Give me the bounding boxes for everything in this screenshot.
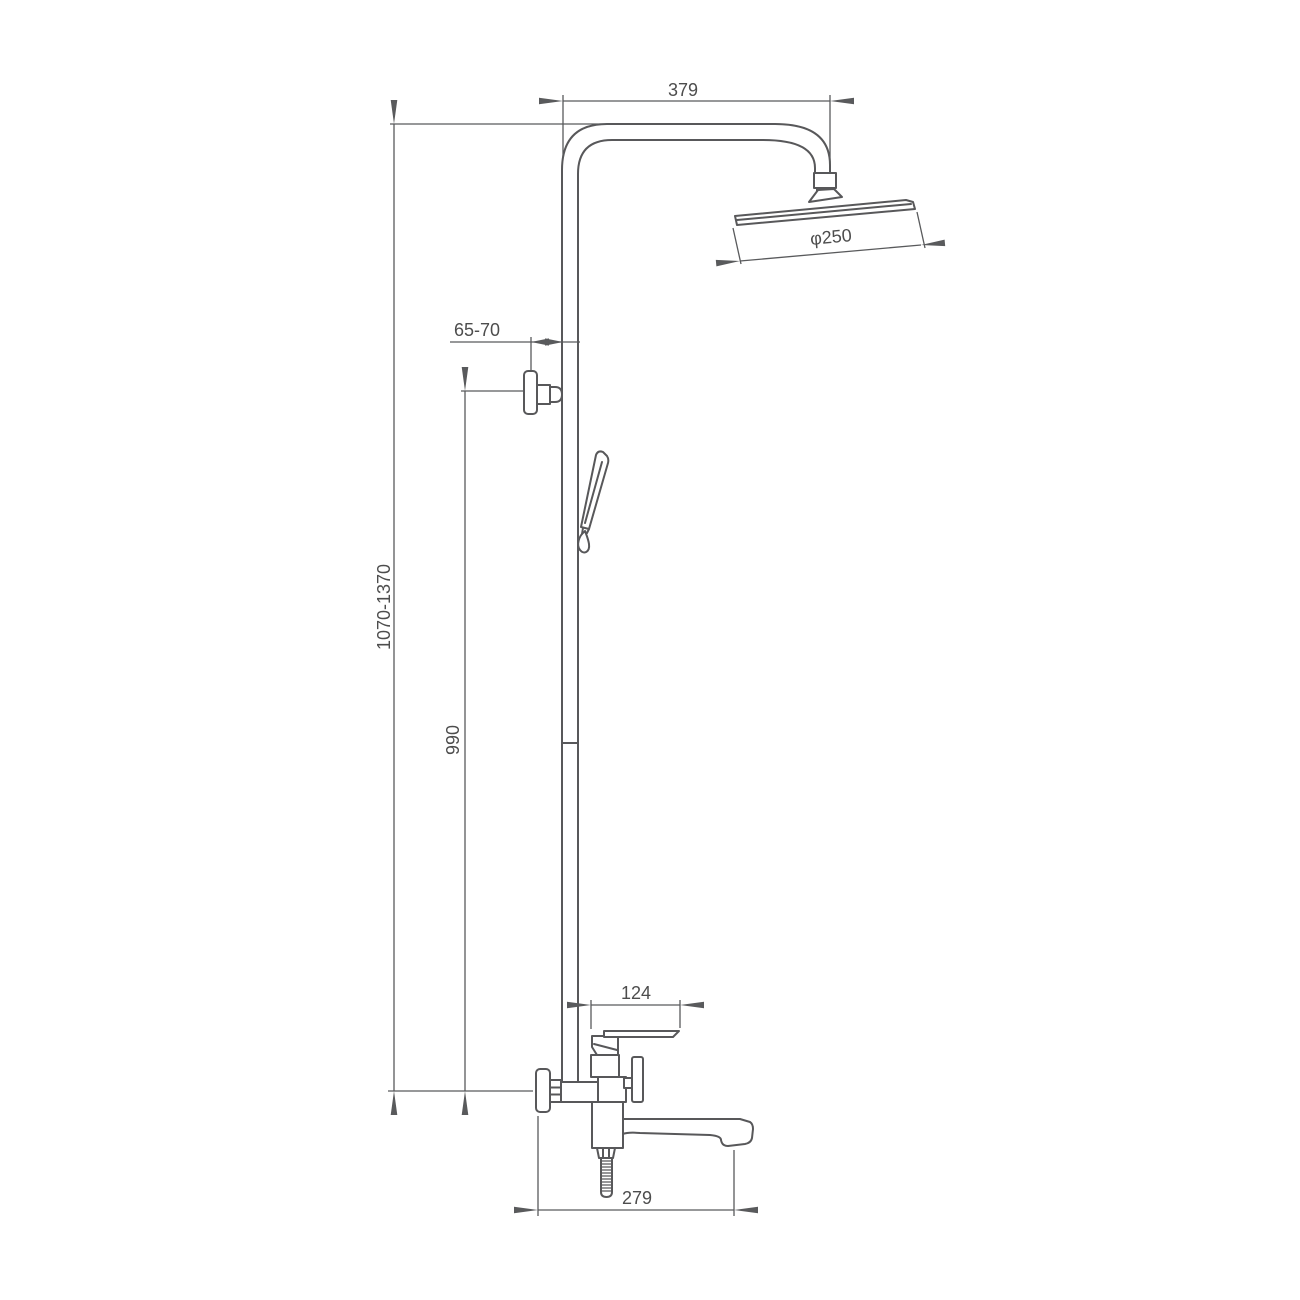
- technical-drawing-canvas: 379 φ250 65-70 1070-1370 990 124: [0, 0, 1300, 1300]
- rain-shower-head: [735, 200, 915, 225]
- mixer-cartridge-body: [591, 1055, 619, 1077]
- dimension-handle-width: 124: [591, 983, 680, 1005]
- mixer-mid-body: [598, 1077, 626, 1102]
- dimension-annotations: 379 φ250 65-70 1070-1370 990 124: [374, 80, 925, 1216]
- dimension-head-diameter: φ250: [740, 225, 921, 261]
- dimension-wall-offset: 65-70: [450, 320, 580, 346]
- head-cone: [809, 189, 842, 202]
- dim-label-wall-offset: 65-70: [454, 320, 500, 340]
- mixer-valve: [591, 1031, 753, 1197]
- mixer-handle: [592, 1031, 679, 1055]
- dim-label-head-diameter: φ250: [809, 225, 852, 249]
- dimension-riser-height: 990: [443, 391, 465, 1091]
- wall-flange: [536, 1069, 550, 1112]
- dim-label-arm-reach: 379: [668, 80, 698, 100]
- shower-fixture: [524, 124, 915, 1197]
- head-connector: [809, 173, 842, 202]
- dimension-spout-reach: 279: [538, 1188, 734, 1210]
- dim-label-spout-reach: 279: [622, 1188, 652, 1208]
- dimension-overall-height: 1070-1370: [374, 124, 394, 1091]
- inlet-hex-nut: [550, 1080, 561, 1102]
- tub-spout: [623, 1119, 753, 1146]
- dim-label-overall-height: 1070-1370: [374, 564, 394, 650]
- hand-shower-hook: [578, 531, 589, 552]
- upper-wall-bracket: [524, 371, 562, 414]
- riser-pipe-and-shower-arm: [562, 124, 830, 1082]
- extension-lines: [388, 95, 925, 1216]
- dim-label-riser-height: 990: [443, 725, 463, 755]
- mixer-lower-body: [592, 1102, 623, 1148]
- hose-nut: [597, 1148, 615, 1158]
- mixer-handle-lever: [604, 1031, 679, 1037]
- dim-label-handle-width: 124: [621, 983, 651, 1003]
- shower-hose: [601, 1158, 612, 1197]
- shower-system-dimension-drawing: 379 φ250 65-70 1070-1370 990 124: [0, 0, 1300, 1300]
- hand-shower: [578, 451, 608, 552]
- dimension-arm-reach: 379: [563, 80, 830, 101]
